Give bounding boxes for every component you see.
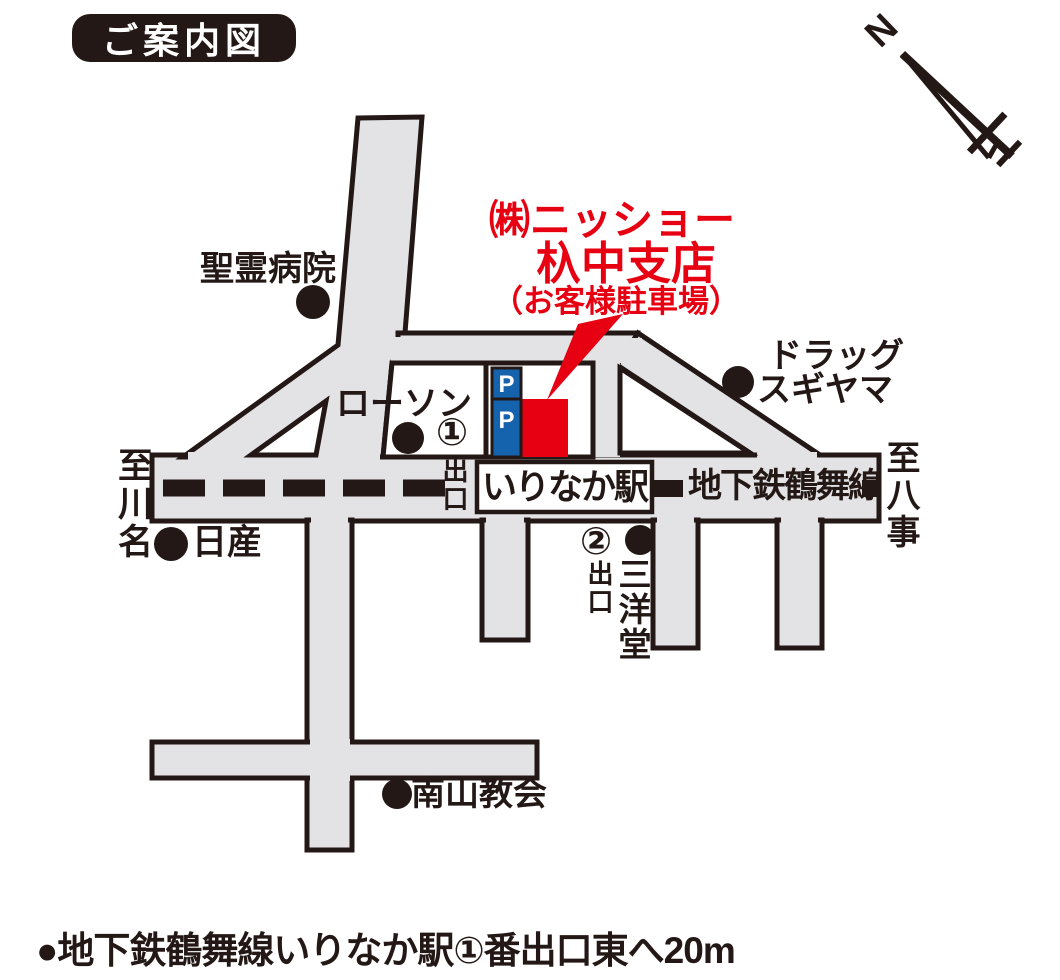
label-drugstore-line2: スギヤマ — [757, 373, 893, 407]
destination-parking-note: （お客様駐車場） — [492, 286, 740, 317]
road-south-sanyodo — [653, 520, 698, 648]
exit2-label: 出口 — [586, 560, 612, 616]
dot-lawson — [392, 422, 424, 454]
access-note: ●地下鉄鶴舞線いりなか駅①番出口東へ20m — [36, 932, 735, 969]
destination-name-line2: 杁中支店 — [536, 241, 716, 286]
label-hospital: 聖霊病院 — [200, 252, 336, 286]
road-south-long — [307, 520, 352, 850]
road-junction-patch-s3 — [657, 514, 694, 526]
destination-name-line1: ㈱ニッショー — [489, 200, 735, 241]
dot-sanyodo — [625, 525, 655, 555]
label-lawson: ローソン — [336, 387, 472, 421]
label-church: 南山教会 — [411, 777, 547, 811]
exit1-label: 出口 — [441, 457, 467, 513]
destination-building-marker — [517, 399, 568, 457]
exit2-number: ② — [580, 523, 612, 561]
label-sanyodo: 三洋堂 — [616, 557, 649, 662]
road-junction-patch-s1 — [311, 514, 348, 526]
road-south-east — [777, 520, 822, 648]
road-junction-patch-branch — [391, 337, 411, 361]
station-name: いりなか駅 — [477, 462, 652, 512]
direction-west-kawana: 至川名 — [115, 447, 150, 561]
road-south-station — [482, 520, 528, 640]
map-title: ご案内図 — [102, 12, 266, 64]
compass-north-arrow — [885, 35, 1030, 175]
label-nissan: 日産 — [192, 525, 262, 560]
parking-sign-top-label: P — [492, 370, 521, 399]
label-drugstore-line1: ドラッグ — [768, 339, 904, 373]
dot-hospital — [296, 285, 330, 319]
road-junction-patch-s2 — [486, 514, 524, 526]
dot-nissan — [154, 527, 188, 561]
road-junction-patch-s4 — [781, 514, 818, 526]
dot-drugstore — [722, 366, 754, 398]
subway-line-name: 地下鉄鶴舞線 — [688, 469, 880, 503]
direction-east-yagoto: 至八事 — [883, 440, 917, 551]
dot-church — [382, 779, 412, 809]
subway-connector-left — [653, 480, 683, 497]
road-junction-patch-diagonal-bottom — [757, 452, 817, 462]
road-junction-patch-cross — [310, 739, 350, 781]
map-title-box: ご案内図 — [72, 14, 296, 62]
parking-sign-bottom-label: P — [492, 404, 521, 438]
